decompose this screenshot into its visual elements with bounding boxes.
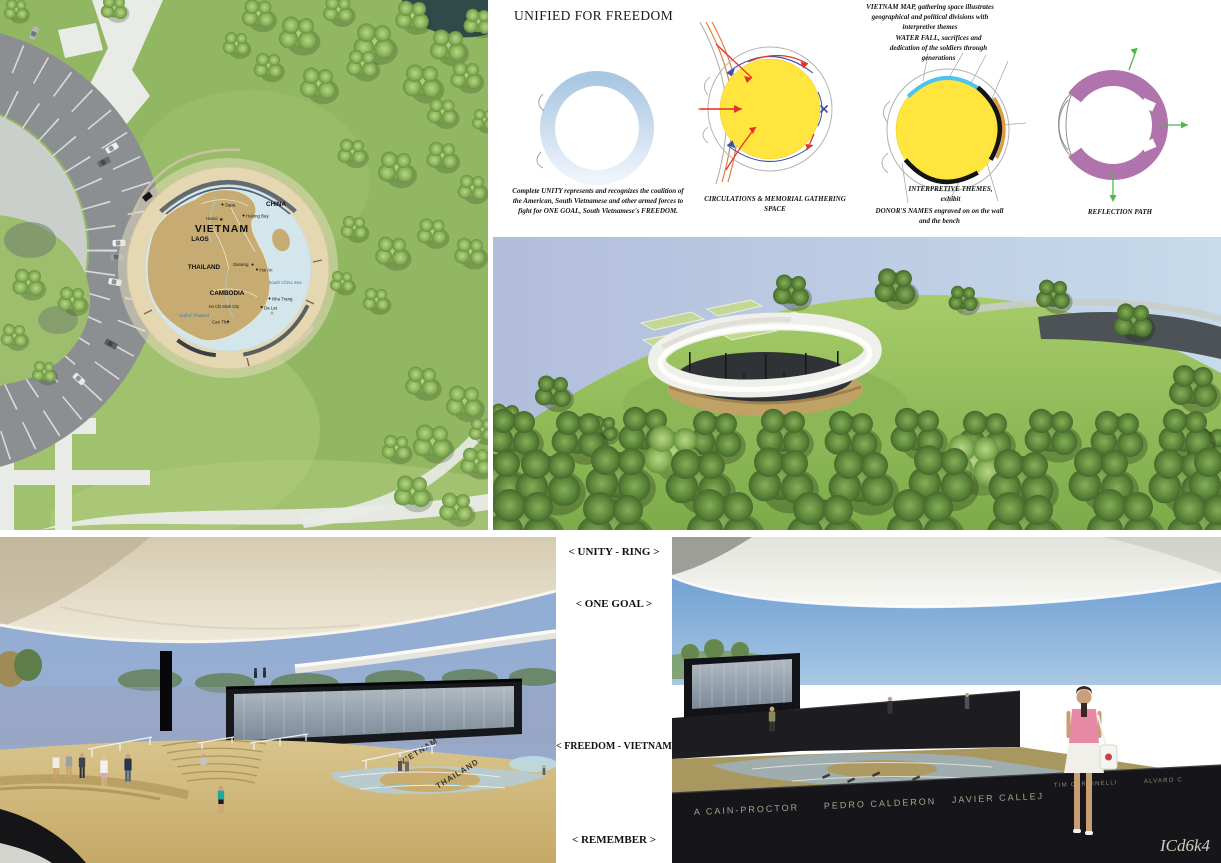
program-diagram: [868, 53, 1033, 205]
label-freedom-vietnam: < FREEDOM - VIETNAM >: [556, 741, 672, 752]
label-da-lat: Da Lat: [264, 306, 278, 311]
interpretive-note: INTERPRETIVE THEMES, exhibit: [903, 184, 998, 204]
unity-caption: Complete UNITY represents and recognizes…: [512, 186, 684, 216]
label-hoi-an: Hoi An: [260, 268, 273, 273]
label-south-china-sea: South China Sea: [268, 280, 302, 285]
label-laos: LAOS: [191, 236, 209, 243]
label-vietnam: VIETNAM: [195, 223, 249, 235]
label-halong-bay: Halong Bay: [246, 214, 270, 219]
person: [888, 697, 893, 714]
label-one-goal: < ONE GOAL >: [556, 598, 672, 610]
presentation-board: VIETNAM CHINA LAOS THAILAND CAMBODIA Sap…: [0, 0, 1221, 863]
interior-render-right: A CAIN-PROCTOR PEDRO CALDERON JAVIER CAL…: [672, 537, 1221, 863]
hanoi-star-icon: ★: [219, 217, 224, 223]
label-remember: < REMEMBER >: [556, 834, 672, 846]
pillar: [160, 651, 172, 731]
label-danang: Danang: [233, 262, 249, 267]
label-china: CHINA: [266, 201, 286, 208]
label-thailand: THAILAND: [188, 264, 221, 271]
board-title: UNIFIED FOR FREEDOM: [514, 8, 673, 24]
person: [965, 693, 970, 709]
interior-render-left: VIETNAM THAILAND: [0, 537, 556, 863]
label-gulf-of-thailand: Gulf of Thailand: [179, 313, 209, 318]
circulation-caption: CIRCULATIONS & MEMORIAL GATHERING SPACE: [700, 194, 850, 214]
label-hanoi: Hanoi: [206, 216, 217, 221]
label-can-tho: Can Tho: [212, 320, 229, 325]
label-nha-trang: Nha Trang: [272, 297, 293, 302]
label-sapa: Sapa: [225, 203, 236, 208]
watermark: ICd6k4: [1159, 836, 1211, 855]
waterfall-wall: [684, 653, 800, 718]
hillside-render: [493, 237, 1221, 530]
reflection-caption: REFLECTION PATH: [1040, 207, 1200, 217]
vietnam-map-note: VIETNAM MAP, gathering space illustrates…: [862, 2, 998, 32]
reflection-path-diagram: [1042, 38, 1212, 210]
circulation-diagram: [698, 22, 850, 190]
water-fall-note: WATER FALL, sacrifices and dedication of…: [886, 33, 991, 63]
label-unity-ring: < UNITY - RING >: [556, 546, 672, 558]
donors-note: DONOR'S NAMES engraved on on the wall an…: [872, 206, 1007, 226]
label-hcmc: Ho Chi Minh City: [209, 304, 241, 309]
person: [543, 765, 546, 775]
site-plan-render: VIETNAM CHINA LAOS THAILAND CAMBODIA Sap…: [0, 0, 488, 530]
section-label-strip: < UNITY - RING > < ONE GOAL > < FREEDOM …: [556, 537, 672, 863]
label-cambodia: CAMBODIA: [210, 290, 245, 297]
